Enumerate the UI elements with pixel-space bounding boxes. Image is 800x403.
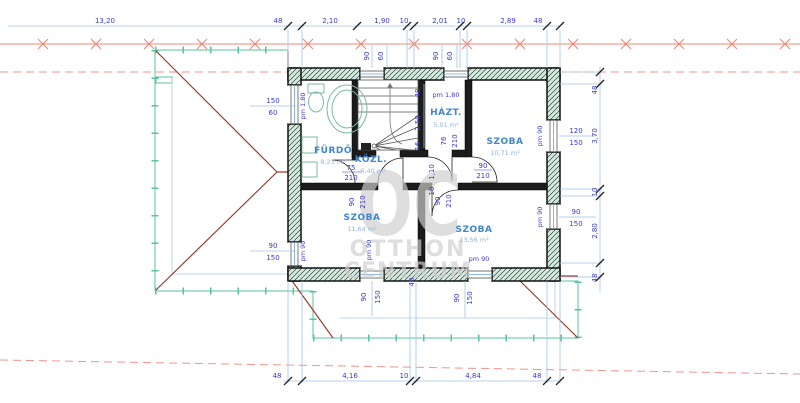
- dim-ext-top: [288, 30, 560, 68]
- staircase: [358, 80, 418, 150]
- window-top-2: [444, 68, 468, 80]
- room-szoba3-area: 13,56 m²: [459, 236, 489, 244]
- dim-bottom-2: 10: [400, 372, 409, 380]
- win-bottom-1-w: 90: [360, 293, 368, 302]
- door-szoba1-h: 210: [476, 172, 489, 180]
- wall-left-2: [288, 124, 301, 242]
- room-kozl-area: 6,40 m²: [360, 167, 386, 175]
- win-top-2-h: 60: [446, 52, 454, 61]
- door-szoba1-w: 90: [479, 162, 488, 170]
- win-left-lower-w: 90: [269, 242, 278, 250]
- door-hazt-h: 210: [451, 134, 459, 147]
- win-left-lower-pm: pm 90: [299, 241, 307, 262]
- sink-icon-2: [302, 162, 317, 177]
- door-furdo-h: 210: [344, 174, 357, 182]
- wall-left-1: [288, 68, 301, 85]
- win-bottom-2-pm: pm 90: [469, 255, 490, 263]
- dim-bottom-0: 48: [273, 372, 282, 380]
- dim-ext-right: [560, 72, 602, 277]
- win-top-2-w: 90: [432, 52, 440, 61]
- toilet-icon: [309, 92, 324, 112]
- win-left-lower-h: 150: [266, 254, 279, 262]
- door-szoba3-w: 90: [434, 197, 442, 206]
- room-furdo-name: FÜRDŐ: [314, 145, 352, 156]
- stair-dim-48: 48: [414, 89, 422, 98]
- door-hazt-w: 76: [440, 136, 448, 145]
- wall-top-3: [468, 68, 560, 80]
- floorplan-canvas: OC OTTHON CENTRUM 13,20 48 2,10 1,90 10 …: [0, 0, 800, 403]
- dim-bottom-1: 4,16: [342, 372, 358, 380]
- wall-right-1: [547, 68, 560, 120]
- dim-top-4: 10: [400, 17, 409, 25]
- stair-landing-post: [361, 143, 371, 150]
- dim-top-2: 2,10: [322, 17, 338, 25]
- room-hazt-name: HÁZT.: [430, 106, 462, 118]
- wall-right-2: [547, 152, 560, 204]
- kozl-dim-110: 1,10: [428, 164, 436, 180]
- stair-dim-250: 2,50: [414, 115, 422, 131]
- wall-top-2: [384, 68, 444, 80]
- door-szoba2-w: 90: [348, 198, 356, 207]
- kozl-dim-10: 10: [428, 187, 436, 196]
- window-top-1: [360, 68, 384, 80]
- wall-hazt-szoba1: [465, 80, 472, 157]
- door-szoba2-h: 210: [359, 195, 367, 208]
- dim-top-7: 2,89: [500, 17, 516, 25]
- dim-ext-bottom-windows: [372, 281, 465, 318]
- room-kozl-name: KÖZL.: [355, 154, 387, 165]
- dim-bottom-4: 48: [533, 372, 542, 380]
- room-szoba1-area: 10,71 m²: [490, 149, 520, 157]
- win-bottom-2-h: 150: [466, 291, 474, 304]
- win-left-upper-h: 60: [269, 109, 278, 117]
- door-furdo-w: 75: [347, 164, 356, 172]
- room-szoba2-name: SZOBA: [344, 213, 381, 223]
- dim-right-3: 2,80: [591, 223, 599, 239]
- window-right-upper: [547, 120, 560, 152]
- win-right-lower-w: 90: [572, 208, 581, 216]
- floorplan-drawing: OC OTTHON CENTRUM 13,20 48 2,10 1,90 10 …: [0, 0, 800, 403]
- stair-dim-pm: pm 1,80: [433, 91, 460, 99]
- dim-top-1: 48: [274, 17, 283, 25]
- roof-hip-bottom-left: [290, 278, 333, 338]
- window-right-lower: [547, 204, 560, 229]
- wall-bottom-3: [492, 268, 560, 281]
- win-bottom-1-h: 150: [374, 290, 382, 303]
- door-szoba3-h: 210: [445, 194, 453, 207]
- room-szoba1-name: SZOBA: [487, 137, 524, 147]
- room-furdo-area: 8,23 m²: [320, 158, 346, 166]
- wall-thickness-48: 48: [408, 278, 416, 287]
- wall-mid-3: [458, 183, 547, 190]
- dim-top-3: 1,90: [374, 17, 390, 25]
- win-bottom-1-pm: pm 90: [365, 240, 373, 261]
- dim-right-2: 10: [591, 188, 599, 197]
- roof-outline-bottom: [313, 281, 578, 338]
- dim-top-6: 10: [457, 17, 466, 25]
- dim-right-0: 48: [591, 86, 599, 95]
- win-top-1-h: 60: [377, 52, 385, 61]
- dim-top-5: 2,01: [432, 17, 448, 25]
- win-right-lower-pm: pm 90: [536, 207, 544, 228]
- dim-bottom-3: 4,84: [465, 372, 481, 380]
- win-right-upper-pm: pm 90: [536, 126, 544, 147]
- dim-top-0: 13,20: [95, 17, 115, 25]
- dim-right-4: 48: [591, 274, 599, 283]
- dim-top-8: 48: [534, 17, 543, 25]
- stair-newel: [372, 144, 376, 148]
- win-right-lower-h: 150: [569, 220, 582, 228]
- room-szoba3-name: SZOBA: [456, 225, 493, 235]
- win-right-upper-w: 120: [569, 127, 582, 135]
- room-hazt-area: 5,01 m²: [433, 121, 459, 129]
- win-right-upper-h: 150: [569, 139, 582, 147]
- dim-right-1: 3,70: [591, 128, 599, 144]
- stair-dim-16: 16: [414, 141, 422, 150]
- win-bottom-2-w: 90: [453, 294, 461, 303]
- win-top-1-w: 90: [363, 52, 371, 61]
- win-left-upper-w: 150: [266, 97, 279, 105]
- room-szoba2-area: 11,64 m²: [347, 225, 377, 233]
- roof-hip-bottom-right: [515, 276, 578, 338]
- win-left-upper-pm: pm 1,80: [299, 93, 307, 120]
